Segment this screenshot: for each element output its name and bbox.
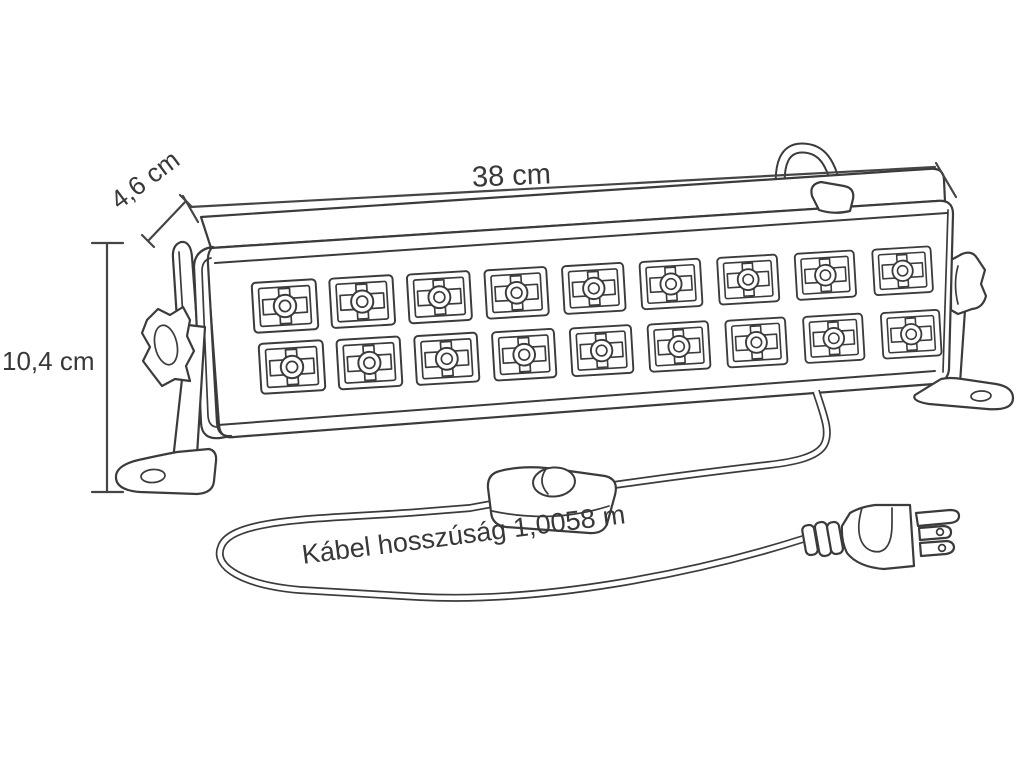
dimension-label-width: 38 cm xyxy=(471,158,551,194)
diagram-canvas: 38 cm 4,6 cm 10,4 cm Kábel hosszúság 1,0… xyxy=(0,0,1024,768)
led-module xyxy=(639,259,702,310)
led-module xyxy=(881,310,942,359)
cable-grommet xyxy=(811,182,853,213)
led-module xyxy=(329,275,395,328)
plug-body xyxy=(842,505,914,569)
cable-strain-relief xyxy=(801,521,843,557)
led-module xyxy=(336,336,402,389)
led-module xyxy=(872,246,933,295)
plug-blade-bottom xyxy=(920,541,954,556)
led-module xyxy=(717,255,779,305)
led-module xyxy=(484,267,549,319)
foot-left-pad xyxy=(116,449,216,494)
adjustment-knob-right xyxy=(951,253,986,314)
led-module xyxy=(414,333,479,386)
led-module xyxy=(492,329,557,381)
power-plug xyxy=(842,505,959,569)
led-module xyxy=(647,321,710,372)
knob-left-star xyxy=(142,307,194,386)
led-module xyxy=(795,250,857,300)
led-module xyxy=(725,317,787,367)
dimension-line-depth xyxy=(142,195,192,247)
led-module xyxy=(803,314,865,364)
led-module xyxy=(407,271,472,324)
dimension-line-height xyxy=(92,243,123,492)
led-module xyxy=(562,263,626,314)
fixture-diagram xyxy=(0,0,1024,768)
depth-dim-line xyxy=(148,201,186,241)
plug-blade-top xyxy=(919,526,951,540)
dimension-label-height: 10,4 cm xyxy=(2,346,95,377)
plug-ground-pin xyxy=(916,510,959,526)
led-module xyxy=(252,279,319,333)
led-module xyxy=(570,325,634,376)
mounting-foot-left xyxy=(116,449,216,494)
adjustment-knob-left xyxy=(142,307,194,386)
led-module xyxy=(259,340,326,394)
